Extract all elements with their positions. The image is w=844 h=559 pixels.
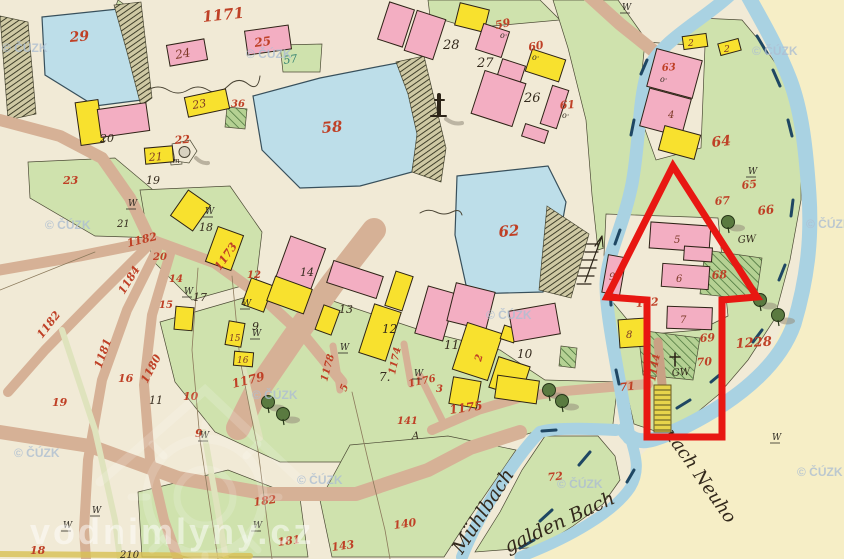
cuzk-watermark: © ČÚZK: [2, 40, 48, 55]
map-label: 7: [680, 315, 687, 326]
map-label: 16: [118, 372, 134, 385]
map-label: 64: [711, 133, 732, 151]
map-label: 28: [442, 38, 460, 53]
garden-small-hatch: [559, 346, 577, 368]
meadow-symbol: W: [252, 329, 262, 339]
map-label: 66: [757, 202, 776, 218]
map-label: 62: [498, 221, 520, 241]
site-watermark-text: vodnimlyny.cz: [30, 511, 314, 552]
map-label: 68: [711, 268, 728, 282]
map-label: 16: [237, 356, 249, 366]
map-label: 4: [667, 110, 674, 121]
map-label: 63: [661, 62, 676, 74]
garden-36-hatch: [225, 107, 247, 129]
building: [684, 246, 713, 262]
orchard-symbol: o·: [660, 75, 667, 84]
map-label: 11: [149, 394, 163, 407]
map-label: GW: [671, 367, 691, 379]
map-label: 24: [173, 46, 191, 63]
cuzk-watermark: © ČÚZK: [557, 476, 603, 491]
cuzk-watermark: © ČÚZK: [297, 472, 343, 487]
map-label: 29: [68, 28, 90, 46]
building: [682, 33, 708, 49]
map-label: 14: [300, 266, 314, 279]
map-label: 60: [527, 38, 545, 54]
map-label: GW: [737, 234, 757, 246]
map-label: 5: [674, 235, 680, 246]
cuzk-watermark: © ČÚZK: [14, 445, 60, 460]
meadow-symbol: W: [128, 199, 138, 209]
cuzk-watermark: © ČÚZK: [246, 46, 292, 61]
orchard-symbol: o·: [500, 31, 507, 40]
tree-icon: [277, 408, 290, 421]
building: [667, 306, 713, 330]
map-label: 61: [559, 98, 575, 112]
cuzk-watermark: © ČÚZK: [797, 464, 843, 479]
map-label: 15: [159, 300, 173, 311]
map-label: 70: [696, 355, 713, 369]
building: [661, 263, 709, 289]
map-label: 21: [147, 150, 163, 164]
map-label: 17: [193, 291, 207, 304]
map-label: 2: [723, 45, 730, 55]
meadow-symbol: W: [340, 343, 350, 353]
meadow-symbol: W: [772, 433, 782, 443]
meadow-symbol: W: [205, 207, 215, 217]
map-label: 11: [444, 338, 459, 352]
map-label: A: [411, 431, 419, 442]
tree-icon: [556, 395, 569, 408]
map-label: m: [173, 157, 180, 165]
meadow-symbol: W: [242, 299, 252, 309]
map-label: 27: [476, 56, 494, 71]
cuzk-watermark: © ČÚZK: [252, 387, 298, 402]
map-label: 6: [676, 274, 683, 285]
map-label: 3: [436, 384, 443, 395]
map-label: 18: [199, 221, 213, 234]
map-label: 14: [169, 274, 183, 285]
building: [174, 306, 194, 330]
map-label: 69: [699, 331, 716, 345]
map-label: 12: [382, 322, 397, 336]
well-circle: [179, 147, 190, 158]
map-label: 13: [339, 303, 353, 316]
map-viewport: 1171295862242523365720212223192118118411…: [0, 0, 844, 559]
cuzk-watermark: © ČÚZK: [45, 217, 91, 232]
cuzk-watermark: © ČÚZK: [752, 43, 798, 58]
map-label: 20: [99, 132, 114, 145]
map-label: 21: [116, 219, 130, 230]
map-label: 23: [190, 97, 207, 112]
map-label: 2: [687, 39, 694, 49]
meadow-symbol: W: [414, 369, 424, 379]
map-label: 58: [321, 117, 344, 137]
map-label: 20: [152, 252, 167, 263]
map-label: 15: [229, 334, 241, 344]
cuzk-watermark: © ČÚZK: [486, 307, 532, 322]
map-label: 141: [397, 416, 418, 427]
meadow-symbol: W: [622, 3, 632, 13]
tree-icon: [722, 216, 735, 229]
map-label: 19: [52, 396, 68, 409]
map-label: 10: [517, 347, 533, 361]
map-canvas: 1171295862242523365720212223192118118411…: [0, 0, 844, 559]
tree-icon: [543, 384, 556, 397]
orchard-symbol: o·: [532, 53, 539, 62]
orchard-symbol: o·: [562, 111, 569, 120]
map-label: 12: [247, 270, 261, 281]
map-label: 23: [62, 174, 79, 187]
map-label: 1228: [735, 335, 772, 352]
map-label: 65: [741, 177, 758, 192]
map-label: 26: [523, 91, 541, 106]
map-label: 22: [173, 133, 191, 147]
map-label: 36: [231, 99, 245, 110]
cuzk-watermark: © ČÚZK: [806, 216, 844, 231]
map-label: 19: [146, 174, 160, 187]
meadow-symbol: W: [748, 167, 758, 177]
map-label: 8: [626, 330, 632, 341]
meadow-symbol: W: [184, 287, 194, 297]
map-label: 67: [714, 194, 731, 208]
tree-icon: [772, 309, 785, 322]
map-label: 71: [619, 379, 636, 394]
